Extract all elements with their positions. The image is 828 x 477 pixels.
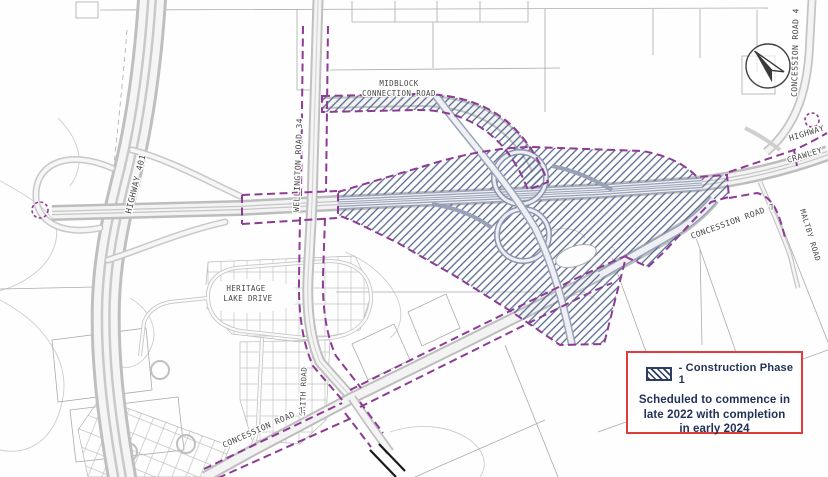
legend-schedule-line1: Scheduled to commence in: [634, 393, 795, 408]
legend-box: - Construction Phase 1 Scheduled to comm…: [626, 351, 803, 434]
label-heritage-line1: HERITAGE: [226, 284, 265, 293]
legend-phase-label: - Construction Phase 1: [679, 362, 795, 386]
legend-schedule-line2: late 2022 with completion: [634, 408, 795, 423]
legend-schedule-line3: in early 2024: [634, 422, 795, 437]
north-arrow-icon: [746, 44, 790, 88]
construction-phase-map: HIGHWAY 401 WELLINGTON ROAD 34 MIDBLOCK …: [0, 0, 828, 477]
label-midblock-line1: MIDBLOCK: [379, 79, 418, 88]
label-heritage-line2: LAKE DRIVE: [223, 294, 272, 303]
label-concession-road-4: CONCESSION ROAD 4: [790, 8, 801, 97]
label-midblock-line2: CONNECTION ROAD: [362, 89, 436, 98]
legend-key-row: - Construction Phase 1: [646, 362, 795, 386]
phase1-hatch-swatch: [646, 367, 672, 381]
